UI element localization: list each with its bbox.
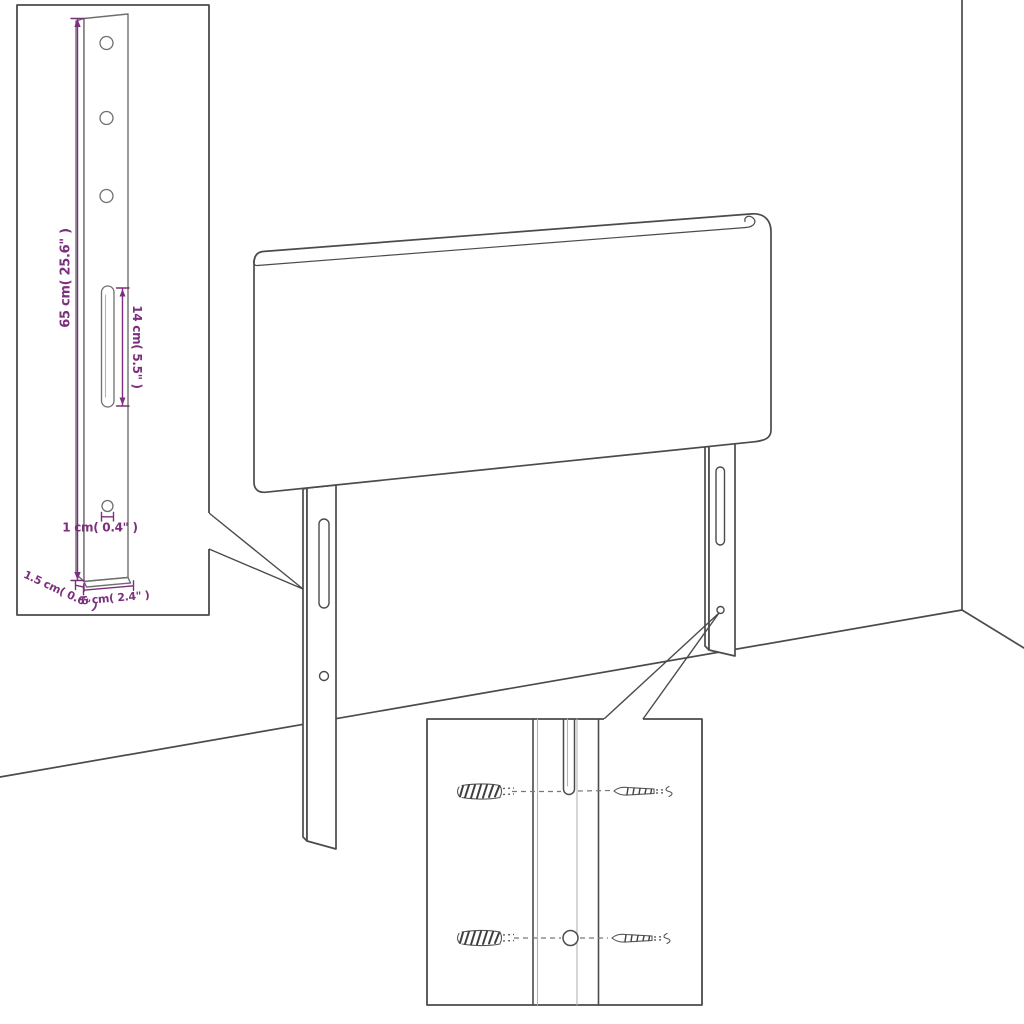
detail-inset-leg: 65 cm( 25.6" ) 14 cm( 5.5" ) 1 cm( 0.4" … [17, 5, 209, 615]
right-leg-hole [717, 607, 724, 614]
headboard-right-leg [705, 443, 735, 656]
slot-length-label: 14 cm( 5.5" ) [130, 305, 144, 388]
inset-mounting-border [427, 719, 702, 1005]
left-leg-slot [319, 519, 329, 608]
diagram-svg: 65 cm( 25.6" ) 14 cm( 5.5" ) 1 cm( 0.4" … [0, 0, 1024, 1024]
callout-lines-bottom-inset [604, 613, 719, 719]
inset-leg-hole-3 [100, 190, 113, 203]
right-leg-slot [716, 467, 725, 545]
detail-inset-mounting [427, 719, 702, 1005]
callout-lines-topleft-inset [209, 513, 303, 589]
inset-leg-small-hole [102, 501, 113, 512]
hole-diameter-label: 1 cm( 0.4" ) [62, 521, 137, 535]
assembly-diagram: 65 cm( 25.6" ) 14 cm( 5.5" ) 1 cm( 0.4" … [0, 0, 1024, 1024]
panel-outline [254, 214, 771, 493]
height-label: 65 cm( 25.6" ) [59, 228, 74, 327]
inset-leg-hole-2 [100, 112, 113, 125]
left-leg-hole [320, 672, 329, 681]
inset-hole-closeup [563, 931, 578, 946]
floor-line-right [962, 610, 1024, 648]
inset-leg-hole-1 [100, 37, 113, 50]
headboard-panel [254, 214, 771, 493]
headboard-left-leg [303, 485, 336, 849]
inset-leg-slot [102, 286, 115, 407]
